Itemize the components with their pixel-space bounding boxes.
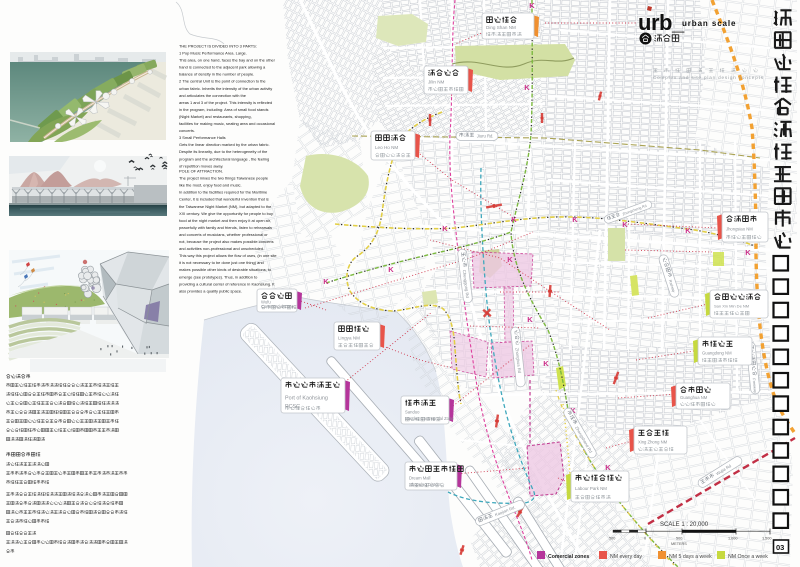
svg-text:urban fabric. Inherits the int: urban fabric. Inherits the intensity of …: [179, 86, 272, 91]
svg-text:Guanghua NM: Guanghua NM: [680, 395, 708, 400]
svg-text:urban scale: urban scale: [682, 19, 736, 28]
svg-text:PCSC: PCSC: [285, 404, 300, 410]
svg-text:program and the architectural: program and the architectural language ,…: [179, 156, 269, 161]
svg-text:Ding Shan NM: Ding Shan NM: [486, 25, 516, 30]
svg-text:in the program, including: Are: in the program, including: Area of small…: [179, 107, 269, 112]
svg-text:METERS: METERS: [671, 542, 687, 546]
svg-text:not, because the project also: not, because the project also makes poss…: [179, 239, 274, 244]
svg-text:like the most, enjoy food and: like the most, enjoy food and music.: [179, 183, 242, 188]
svg-text:Despite its linearity, due to: Despite its linearity, due to the hetero…: [179, 149, 268, 154]
svg-text:hand is connected to the adjac: hand is connected to the adjacent park a…: [179, 65, 266, 70]
svg-text:Xing Zhong NM: Xing Zhong NM: [638, 439, 668, 444]
svg-text:areas 1 and 3 of the project.: areas 1 and 3 of the project. This inten…: [179, 100, 272, 105]
svg-text:This way this project allows t: This way this project allows the flow of…: [179, 253, 277, 258]
svg-text:03: 03: [776, 543, 784, 552]
svg-text:Leo Ho NM: Leo Ho NM: [375, 145, 398, 150]
svg-text:K: K: [685, 226, 691, 235]
svg-text:In addition to the facilities: In addition to the facilities required f…: [179, 190, 268, 195]
svg-text:This area, on one hand, faces: This area, on one hand, faces the bay an…: [179, 58, 276, 63]
svg-text:K: K: [572, 215, 578, 224]
svg-text:NM every day: NM every day: [610, 554, 642, 560]
svg-text:it is not necessary to be done: it is not necessary to be done just one …: [179, 260, 264, 265]
svg-text:K: K: [527, 315, 533, 324]
svg-text:Jilin NM: Jilin NM: [428, 79, 445, 84]
svg-text:Dream Mall: Dream Mall: [409, 475, 430, 480]
svg-text:emerge (see prototypes). Thus,: emerge (see prototypes). Thus, in additi…: [179, 274, 258, 279]
svg-text:K: K: [543, 359, 549, 368]
svg-text:1 Pop Music Performance Area.: 1 Pop Music Performance Area. Large.: [179, 51, 247, 56]
svg-text:San Xin Min De NM: San Xin Min De NM: [714, 303, 749, 308]
svg-text:2 The central Unit is the poin: 2 The central Unit is the point of conne…: [179, 79, 266, 84]
svg-text:NM Once a week: NM Once a week: [728, 554, 768, 560]
svg-text:Port of Kaohsiung: Port of Kaohsiung: [285, 396, 328, 402]
svg-text:food at the night market and t: food at the night market and then enjoy …: [179, 218, 271, 223]
svg-text:Shopping District: Shopping District: [409, 482, 441, 487]
svg-text:The project mixes the two thin: The project mixes the two things Taiwane…: [179, 176, 269, 181]
svg-text:and activities non-professiona: and activities non-professional and unsc…: [179, 246, 264, 251]
svg-text:Complex and site plan design c: Complex and site plan design concepts: [653, 75, 764, 80]
svg-text:1,000: 1,000: [728, 537, 738, 541]
svg-text:Lingya NM: Lingya NM: [338, 335, 360, 340]
svg-text:Comercial zones: Comercial zones: [548, 554, 589, 560]
svg-text:SCALE 1 : 20,000: SCALE 1 : 20,000: [660, 522, 709, 528]
svg-text:K: K: [622, 220, 628, 229]
svg-text:K: K: [323, 277, 329, 286]
svg-text:the Taiwanese Night Market (NM: the Taiwanese Night Market (NM), but ada…: [179, 204, 272, 209]
svg-text:Jhongsiao NM: Jhongsiao NM: [726, 227, 753, 232]
svg-text:K: K: [524, 83, 530, 92]
svg-text:also provides a quality public: also provides a quality public space.: [179, 288, 242, 293]
svg-text:K: K: [388, 265, 394, 274]
svg-text:makes possible other kinds of: makes possible other kinds of desirable …: [179, 267, 272, 272]
svg-text:POLE OF ATTRACTION.: POLE OF ATTRACTION.: [179, 169, 223, 174]
svg-text:facilities for making music, s: facilities for making music, seating are…: [179, 121, 275, 126]
svg-text:Labour Park NM: Labour Park NM: [575, 486, 607, 491]
svg-text:Sanduo Commercial Zone: Sanduo Commercial Zone: [405, 416, 454, 421]
svg-text:Sanduo: Sanduo: [405, 409, 420, 414]
svg-text:3 Small Performance Halls: 3 Small Performance Halls: [179, 135, 226, 140]
svg-text:Center, it is included that wo: Center, it is included that wonderful in…: [179, 197, 269, 202]
svg-text:THE PROJECT IS DIVIDED INTO 3: THE PROJECT IS DIVIDED INTO 3 PARTS:: [179, 44, 257, 49]
svg-text:0: 0: [644, 537, 646, 541]
svg-text:providing a cultural center of: providing a cultural center of reference…: [179, 281, 275, 286]
svg-text:K: K: [529, 1, 535, 10]
svg-text:peacefully with family and fri: peacefully with family and friends, list…: [179, 225, 272, 230]
svg-text:500: 500: [609, 537, 615, 541]
svg-text:500: 500: [676, 537, 682, 541]
svg-text:K: K: [442, 224, 448, 233]
svg-text:XXI century. We give the oppor: XXI century. We give the opportunity for…: [179, 211, 273, 216]
svg-text:1,500: 1,500: [762, 537, 772, 541]
svg-text:K: K: [745, 248, 751, 257]
svg-text:and articulates the connection: and articulates the connection with the: [179, 93, 247, 98]
svg-text:balance of density in the numb: balance of density in the number of peop…: [179, 72, 254, 77]
svg-text:Guangdong NM: Guangdong NM: [702, 350, 732, 355]
svg-text:Commercial Zone: Commercial Zone: [261, 304, 295, 309]
svg-text:Jiuru Rd.: Jiuru Rd.: [477, 134, 494, 139]
svg-text:NM 5 days a week: NM 5 days a week: [669, 554, 712, 560]
svg-text:concerts.: concerts.: [179, 128, 195, 133]
svg-text:K: K: [507, 255, 513, 264]
svg-text:K: K: [511, 215, 517, 224]
svg-text:(Night Market) and restaurants: (Night Market) and restaurants, shopping…: [179, 114, 252, 119]
svg-text:Gets the linear direction mark: Gets the linear direction marked by the …: [179, 142, 270, 147]
svg-text:and concerts of musicians, whe: and concerts of musicians, whether profe…: [179, 232, 268, 237]
svg-text:urb_: urb_: [638, 10, 685, 35]
